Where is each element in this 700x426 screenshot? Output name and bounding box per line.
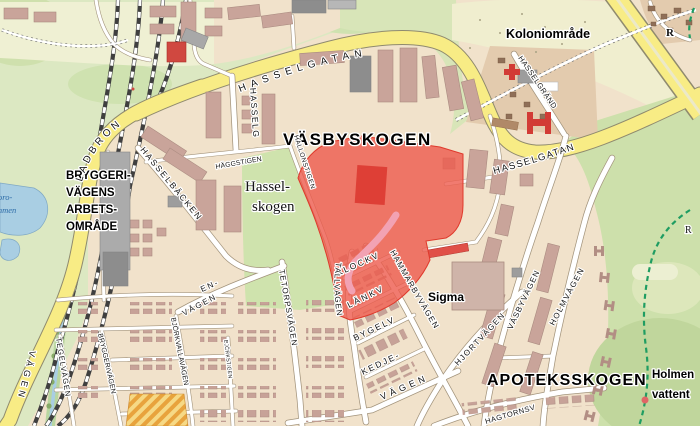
label-r-mid: R <box>685 225 692 236</box>
label-water-2: mmen <box>0 205 16 215</box>
svg-text:VÄGENS: VÄGENS <box>66 186 115 199</box>
sports-field <box>126 394 188 426</box>
label-vasbyskogen: VÄSBYSKOGEN <box>283 130 432 149</box>
svg-text:OMRÅDE: OMRÅDE <box>66 220 117 233</box>
label-koloniomrade: Koloniområde <box>506 27 590 41</box>
poi-dot <box>642 397 649 404</box>
label-sigma: Sigma <box>428 290 464 304</box>
map-canvas[interactable]: VÄSBYSKOGEN APOTEKSSKOGEN Koloniområde S… <box>0 0 700 426</box>
label-r-top: R <box>666 27 675 39</box>
label-holmen-1: Holmen <box>652 369 694 381</box>
highlight-building <box>355 165 388 205</box>
label-hasselskogen-2: skogen <box>252 199 295 215</box>
label-apoteksskogen: APOTEKSSKOGEN <box>487 372 647 389</box>
label-hasselskogen-1: Hassel- <box>245 179 290 195</box>
label-holmen-2: vattent <box>652 389 690 401</box>
label-water-1: oro- <box>0 192 12 202</box>
svg-text:ARBETS-: ARBETS- <box>66 204 117 216</box>
